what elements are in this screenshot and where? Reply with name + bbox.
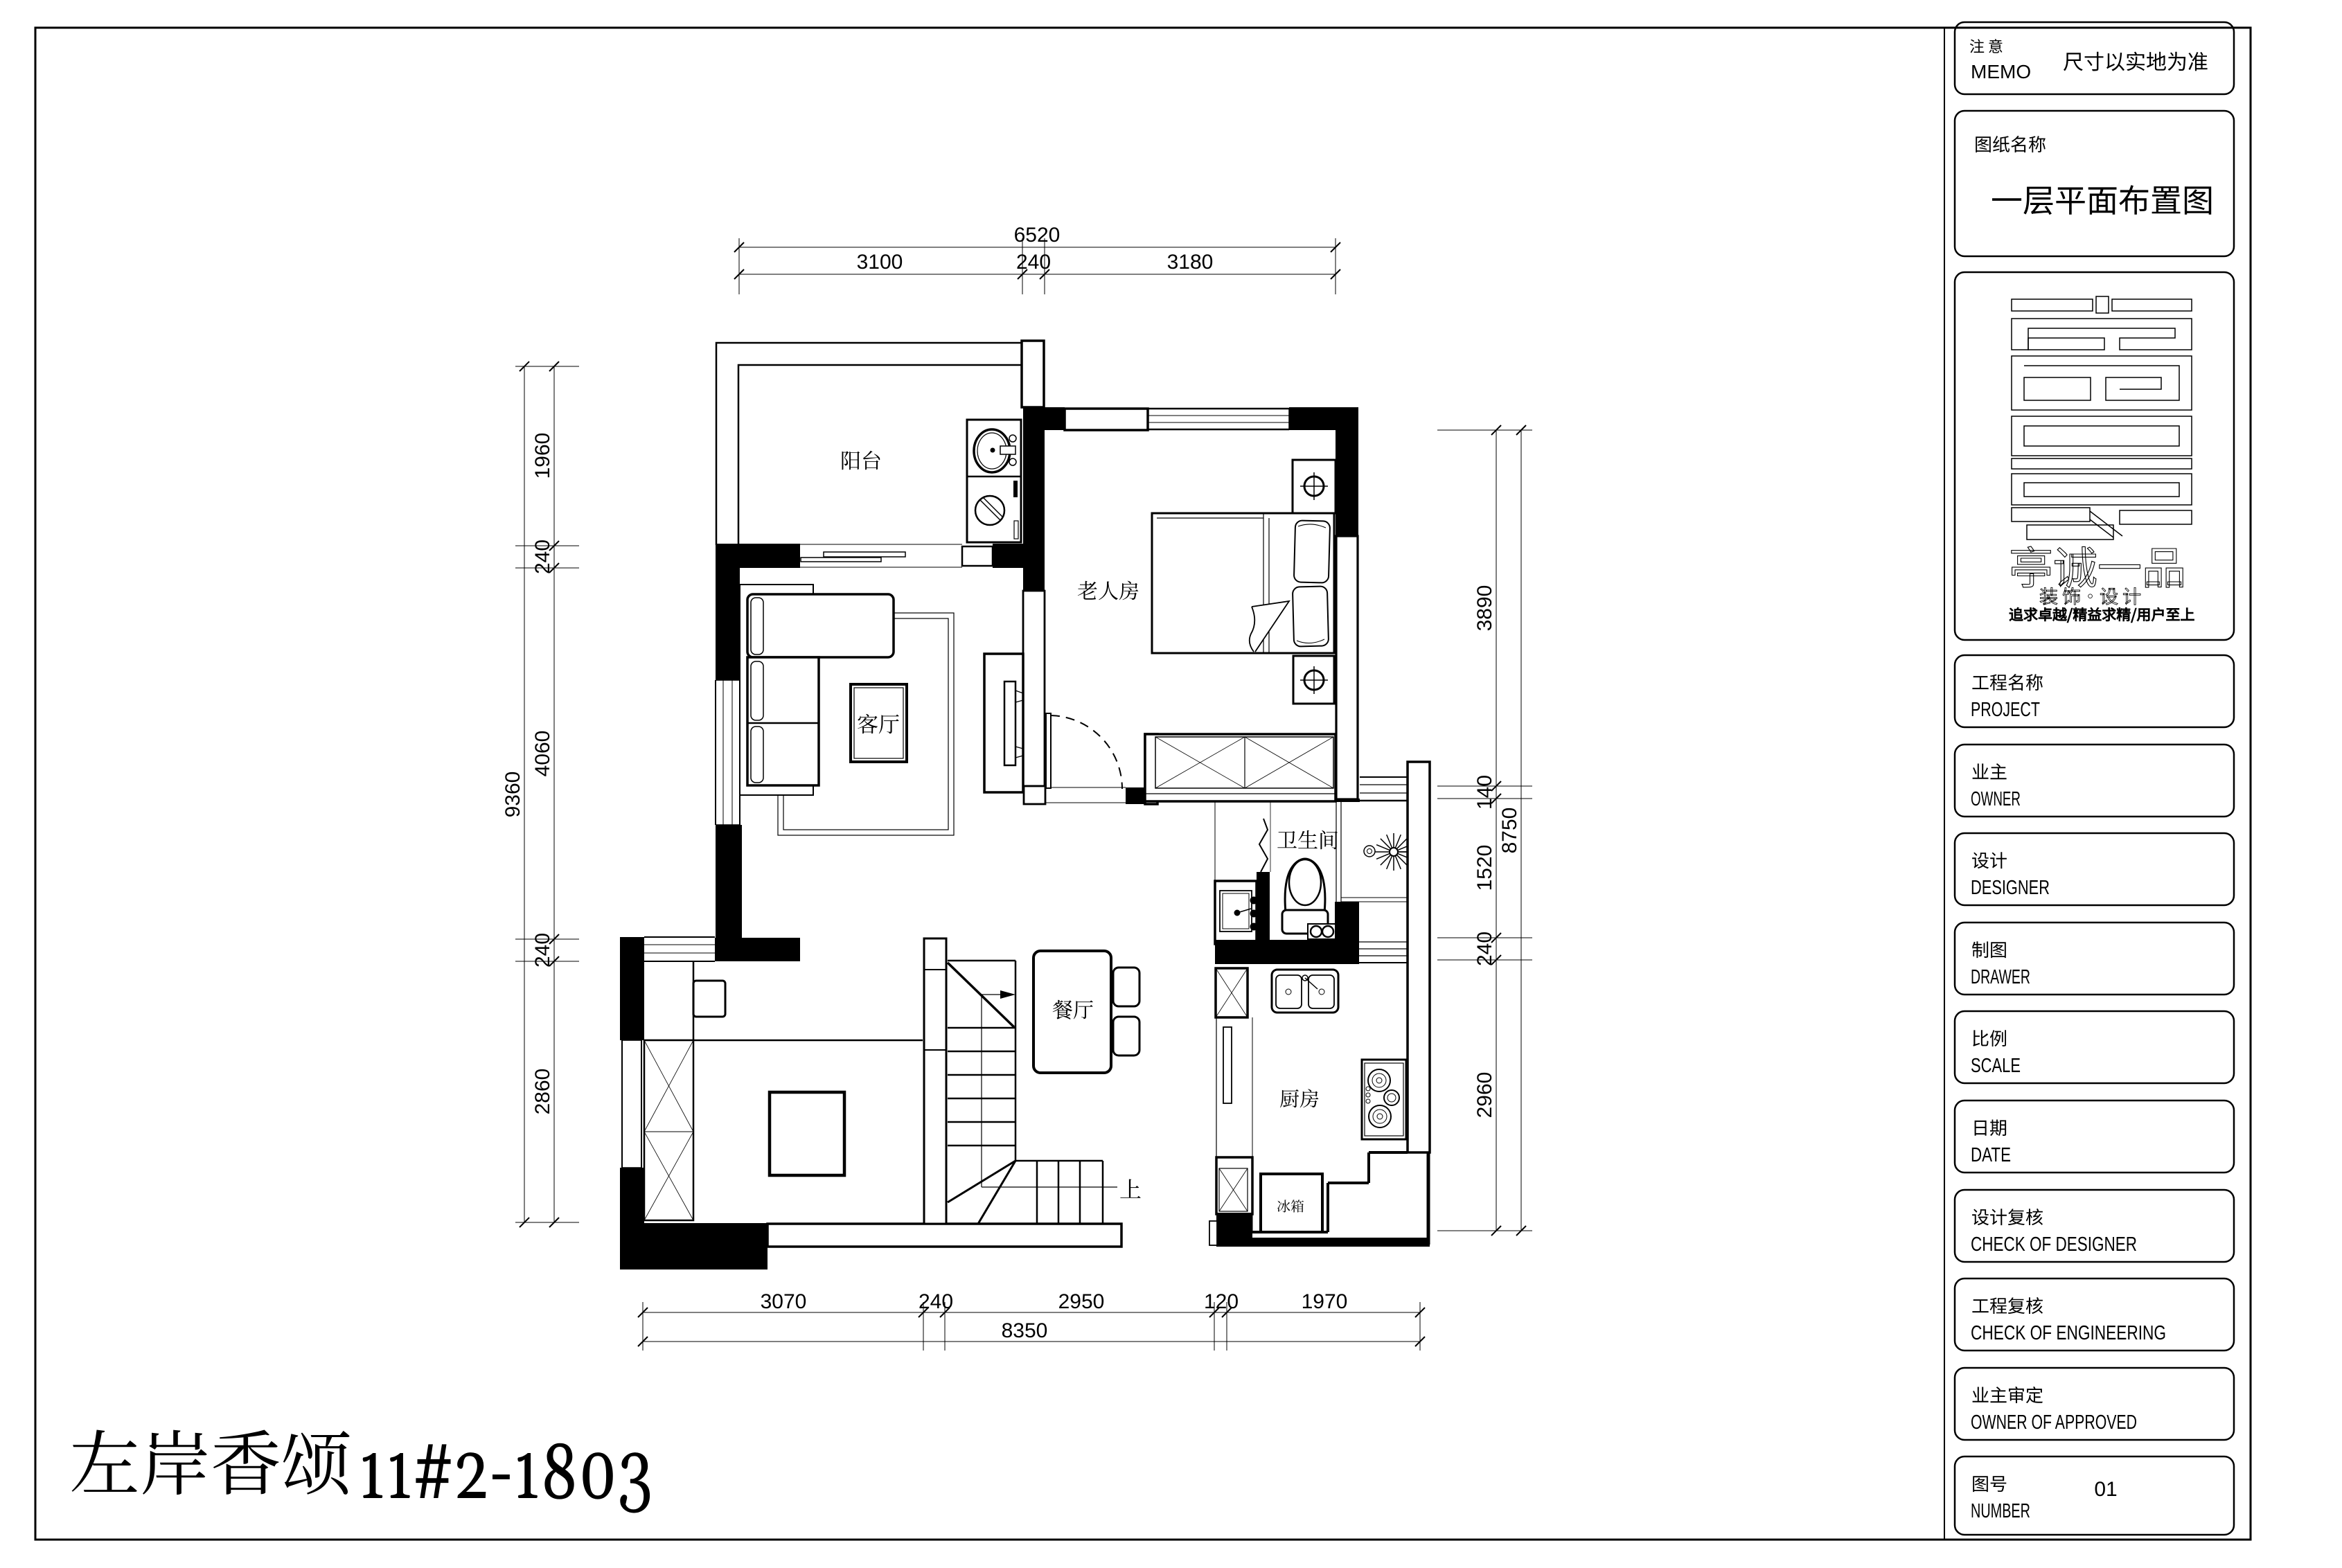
svg-text:DESIGNER: DESIGNER — [1971, 877, 2050, 899]
svg-text:CHECK OF ENGINEERING: CHECK OF ENGINEERING — [1971, 1322, 2166, 1344]
svg-text:DATE: DATE — [1971, 1144, 2011, 1166]
svg-text:3890: 3890 — [1473, 585, 1496, 632]
svg-text:4060: 4060 — [531, 731, 554, 777]
svg-text:8350: 8350 — [1002, 1319, 1048, 1342]
svg-text:9360: 9360 — [502, 772, 524, 818]
svg-text:1970: 1970 — [1302, 1290, 1348, 1313]
svg-text:3070: 3070 — [761, 1290, 807, 1313]
svg-text:01: 01 — [2094, 1478, 2117, 1501]
svg-text:6520: 6520 — [1014, 224, 1061, 247]
svg-text:240: 240 — [919, 1290, 953, 1313]
svg-text:2860: 2860 — [531, 1069, 554, 1115]
svg-text:1520: 1520 — [1473, 845, 1496, 891]
svg-text:CHECK OF DESIGNER: CHECK OF DESIGNER — [1971, 1233, 2137, 1256]
svg-text:240: 240 — [531, 540, 554, 574]
svg-text:1960: 1960 — [531, 433, 554, 479]
svg-text:OWNER OF APPROVED: OWNER OF APPROVED — [1971, 1411, 2137, 1434]
svg-text:2960: 2960 — [1473, 1072, 1496, 1119]
svg-text:2950: 2950 — [1058, 1290, 1105, 1313]
svg-text:120: 120 — [1204, 1290, 1239, 1313]
svg-text:SCALE: SCALE — [1971, 1055, 2021, 1077]
svg-text:240: 240 — [531, 933, 554, 968]
svg-text:3100: 3100 — [857, 251, 903, 274]
svg-text:8750: 8750 — [1498, 808, 1521, 854]
svg-text:NUMBER: NUMBER — [1971, 1500, 2030, 1522]
svg-text:OWNER: OWNER — [1971, 788, 2021, 810]
svg-text:140: 140 — [1473, 775, 1496, 810]
svg-text:PROJECT: PROJECT — [1971, 699, 2040, 721]
svg-text:DRAWER: DRAWER — [1971, 966, 2030, 988]
svg-text:3180: 3180 — [1167, 251, 1214, 274]
svg-text:240: 240 — [1016, 251, 1051, 274]
svg-text:240: 240 — [1473, 932, 1496, 966]
svg-text:MEMO: MEMO — [1971, 61, 2031, 82]
